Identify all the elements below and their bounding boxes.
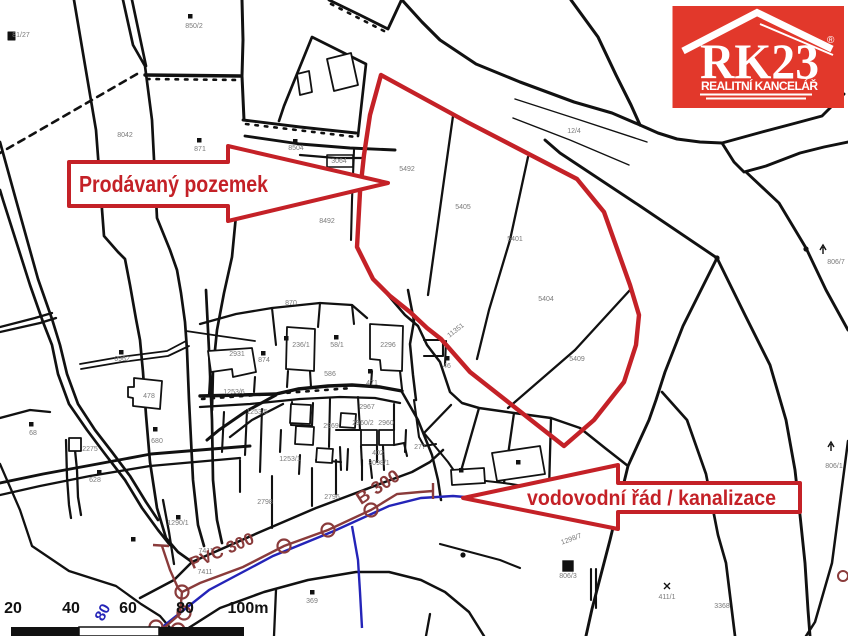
svg-text:80: 80: [176, 600, 194, 617]
svg-text:586: 586: [324, 371, 336, 378]
svg-text:5404: 5404: [538, 296, 554, 303]
svg-text:3064: 3064: [331, 158, 347, 165]
svg-text:806/7: 806/7: [827, 259, 845, 266]
svg-text:5492: 5492: [399, 166, 415, 173]
svg-text:46: 46: [443, 363, 451, 370]
svg-text:2960: 2960: [378, 420, 394, 427]
svg-text:870: 870: [285, 300, 297, 307]
svg-text:5409: 5409: [569, 356, 585, 363]
svg-text:5401: 5401: [507, 236, 523, 243]
svg-text:8504: 8504: [288, 145, 304, 152]
svg-text:2296: 2296: [380, 342, 396, 349]
svg-text:2960/2: 2960/2: [352, 420, 374, 427]
svg-text:1253/1: 1253/1: [279, 456, 301, 463]
svg-text:411/1: 411/1: [659, 594, 676, 601]
svg-text:0962: 0962: [114, 356, 130, 363]
svg-text:2275: 2275: [82, 446, 98, 453]
svg-text:871: 871: [194, 146, 206, 153]
svg-text:1253/6: 1253/6: [223, 389, 245, 396]
svg-text:®: ®: [827, 35, 835, 46]
svg-text:20: 20: [4, 600, 22, 617]
svg-text:628: 628: [89, 477, 101, 484]
svg-text:471: 471: [366, 380, 378, 387]
svg-text:2798: 2798: [257, 499, 273, 506]
svg-text:402: 402: [372, 450, 384, 457]
svg-text:3098/1: 3098/1: [368, 460, 390, 467]
svg-text:277: 277: [414, 444, 426, 451]
svg-text:68: 68: [29, 430, 37, 437]
svg-text:850/2: 850/2: [185, 23, 203, 30]
svg-text:vodovodní řád / kanalizace: vodovodní řád / kanalizace: [527, 487, 776, 510]
svg-text:1290/1: 1290/1: [167, 520, 189, 527]
svg-text:1253/5: 1253/5: [246, 409, 268, 416]
svg-text:2796: 2796: [324, 494, 340, 501]
svg-text:806/3: 806/3: [559, 573, 577, 580]
svg-text:40: 40: [62, 600, 80, 617]
svg-text:Prodávaný pozemek: Prodávaný pozemek: [79, 171, 268, 197]
svg-text:2969: 2969: [323, 423, 339, 430]
svg-text:58/1: 58/1: [330, 342, 344, 349]
svg-text:5405: 5405: [455, 204, 471, 211]
svg-text:806/1: 806/1: [825, 463, 843, 470]
svg-text:2967: 2967: [359, 404, 375, 411]
svg-text:100m: 100m: [228, 600, 269, 617]
svg-text:3368: 3368: [714, 603, 730, 610]
svg-text:8492: 8492: [319, 218, 335, 225]
svg-text:874: 874: [258, 357, 270, 364]
svg-text:12/4: 12/4: [567, 128, 581, 135]
svg-text:369: 369: [306, 598, 318, 605]
svg-text:81/27: 81/27: [12, 32, 30, 39]
svg-text:236/1: 236/1: [292, 342, 310, 349]
svg-text:478: 478: [143, 393, 155, 400]
svg-text:8042: 8042: [117, 132, 133, 139]
svg-text:680: 680: [151, 438, 163, 445]
svg-text:60: 60: [119, 600, 137, 617]
svg-text:REALITNÍ KANCELÁŘ: REALITNÍ KANCELÁŘ: [701, 78, 818, 93]
svg-text:2931: 2931: [229, 351, 245, 358]
